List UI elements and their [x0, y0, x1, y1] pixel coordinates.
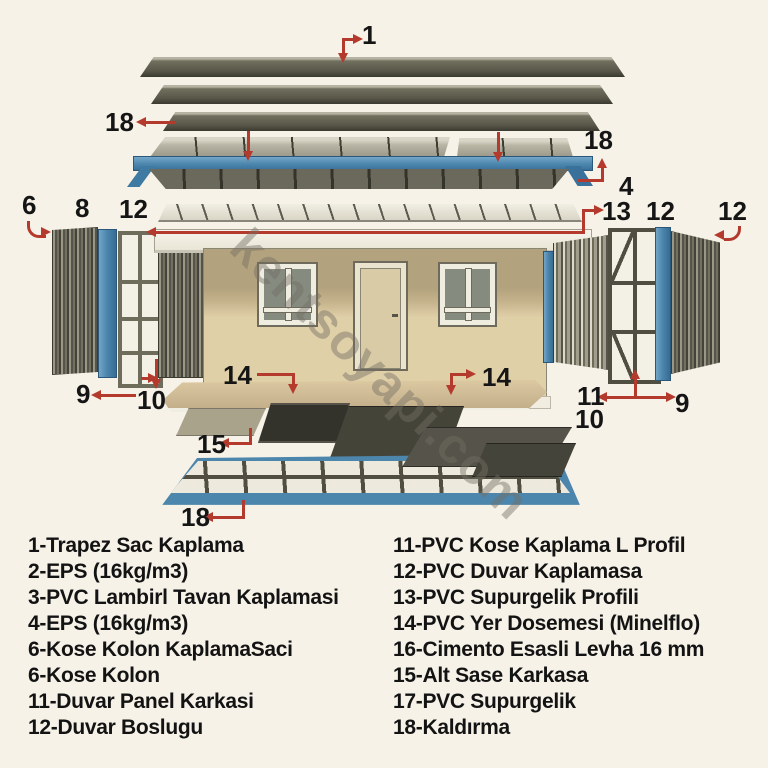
callout-18-top-right-label: 18	[584, 127, 613, 153]
legend-item: 2-EPS (16kg/m3)	[28, 559, 339, 585]
right-corrugated-panel-outer	[671, 231, 720, 374]
callout-11-9-line	[606, 396, 668, 399]
legend-left-column: 1-Trapez Sac Kaplama 2-EPS (16kg/m3) 3-P…	[28, 533, 339, 741]
legend-right-column: 11-PVC Kose Kaplama L Profil 12-PVC Duva…	[393, 533, 704, 741]
callout-6-label: 6	[22, 192, 36, 218]
legend-item: 11-PVC Kose Kaplama L Profil	[393, 533, 704, 559]
callout-6-arrowhead	[41, 227, 51, 237]
legend-item: 17-PVC Supurgelik	[393, 689, 704, 715]
callout-8-label: 8	[75, 195, 89, 221]
roof-eps-underside	[149, 169, 569, 189]
callout-18b-line	[212, 516, 245, 519]
callout-1-arrowhead	[338, 53, 348, 63]
frame-horizontal-bar	[122, 351, 159, 355]
callout-12-far-right-label: 12	[718, 198, 747, 224]
legend-item: 16-Cimento Esasli Levha 16 mm	[393, 637, 704, 663]
lift-arrow-line	[497, 132, 500, 154]
roof-trapez-sheet-1	[140, 57, 625, 77]
callout-18-bottom-label: 18	[181, 504, 210, 530]
callout-15-label: 15	[197, 431, 226, 457]
right-blue-strip-near	[543, 251, 554, 363]
left-corrugated-panel-inner	[158, 236, 204, 378]
callout-14-right-label: 14	[482, 364, 511, 390]
right-wall-frame-panel	[608, 228, 661, 384]
callout-10-right-label: 10	[575, 406, 604, 432]
roof-eps-blue-edge	[133, 156, 593, 171]
frame-horizontal-bar	[122, 317, 159, 321]
callout-14r-arrowhead	[466, 369, 476, 379]
roof-trapez-sheet-3	[163, 112, 600, 131]
legend-item: 6-Kose Kolon	[28, 663, 339, 689]
callout-1-label: 1	[362, 22, 376, 48]
callout-12fr-arrowhead	[714, 230, 724, 240]
legend-item: 18-Kaldırma	[393, 715, 704, 741]
frame-diagonal-brace	[612, 232, 633, 281]
cement-board-tile-1	[258, 403, 350, 443]
callout-13-label: 13	[602, 198, 631, 224]
roof-trapez-sheet-2	[151, 85, 613, 104]
callout-9-right-label: 9	[675, 390, 689, 416]
callout-4-line	[601, 167, 604, 180]
callout-12-right-label: 12	[646, 198, 675, 224]
callout-14-left-label: 14	[223, 362, 252, 388]
legend-item: 3-PVC Lambirl Tavan Kaplamasi	[28, 585, 339, 611]
callout-18tl-line	[145, 121, 175, 124]
callout-9l-line	[100, 394, 136, 397]
window-rail	[444, 307, 491, 313]
callout-13-arrowhead	[146, 227, 156, 237]
legend-item: 15-Alt Sase Karkasa	[393, 663, 704, 689]
callout-14l-arrowhead	[288, 384, 298, 394]
frame-vertical-bar	[138, 235, 142, 384]
callout-wall-arrowhead	[630, 369, 640, 379]
roof-eps-panel	[127, 156, 593, 191]
frame-vertical-bar	[633, 232, 637, 380]
callout-10-left-label: 10	[137, 387, 166, 413]
window-right	[438, 262, 497, 327]
callout-13-line	[155, 231, 585, 234]
callout-14l-line	[257, 373, 295, 376]
callout-9-left-label: 9	[76, 381, 90, 407]
window-mullion	[465, 268, 472, 321]
ceiling-joist-layer-right	[457, 138, 573, 157]
frame-horizontal-bar	[122, 280, 159, 284]
legend-item: 12-Duvar Boslugu	[28, 715, 339, 741]
pvc-ceiling-sheet	[158, 204, 582, 222]
lift-arrow-line	[247, 131, 250, 153]
lift-arrowhead	[493, 152, 503, 162]
callout-12fr-curve	[724, 226, 741, 241]
callout-13-line	[582, 209, 585, 233]
ceiling-joist-layer-left	[150, 137, 450, 157]
callout-14r-arrowhead	[446, 385, 456, 395]
callout-12-left-label: 12	[119, 196, 148, 222]
callout-15-line	[249, 428, 252, 445]
legend-item: 6-Kose Kolon KaplamaSaci	[28, 637, 339, 663]
lift-arrowhead	[243, 151, 253, 161]
right-corrugated-panel-inner	[553, 235, 609, 370]
legend-item: 12-PVC Duvar Kaplamasa	[393, 559, 704, 585]
legend-item: 13-PVC Supurgelik Profili	[393, 585, 704, 611]
left-blue-panel	[98, 229, 117, 378]
exploded-container-house-diagram: 1 18 18 4 6 8 12 13 12 12 9 10 14 14 11 …	[0, 0, 768, 768]
door-handle	[392, 314, 398, 317]
right-blue-panel	[655, 227, 671, 381]
legend-item: 14-PVC Yer Dosemesi (Minelflo)	[393, 611, 704, 637]
callout-18-top-left-label: 18	[105, 109, 134, 135]
callout-10l-arrowhead	[148, 373, 158, 383]
callout-18tl-arrowhead	[136, 117, 146, 127]
callout-wall-line	[634, 378, 637, 398]
callout-4-arrowhead	[597, 158, 607, 168]
callout-9l-arrowhead	[91, 390, 101, 400]
legend-item: 4-EPS (16kg/m3)	[28, 611, 339, 637]
left-corrugated-panel-outer	[52, 227, 98, 375]
legend-item: 1-Trapez Sac Kaplama	[28, 533, 339, 559]
legend-item: 11-Duvar Panel Karkasi	[28, 689, 339, 715]
frame-horizontal-bar	[612, 281, 657, 285]
